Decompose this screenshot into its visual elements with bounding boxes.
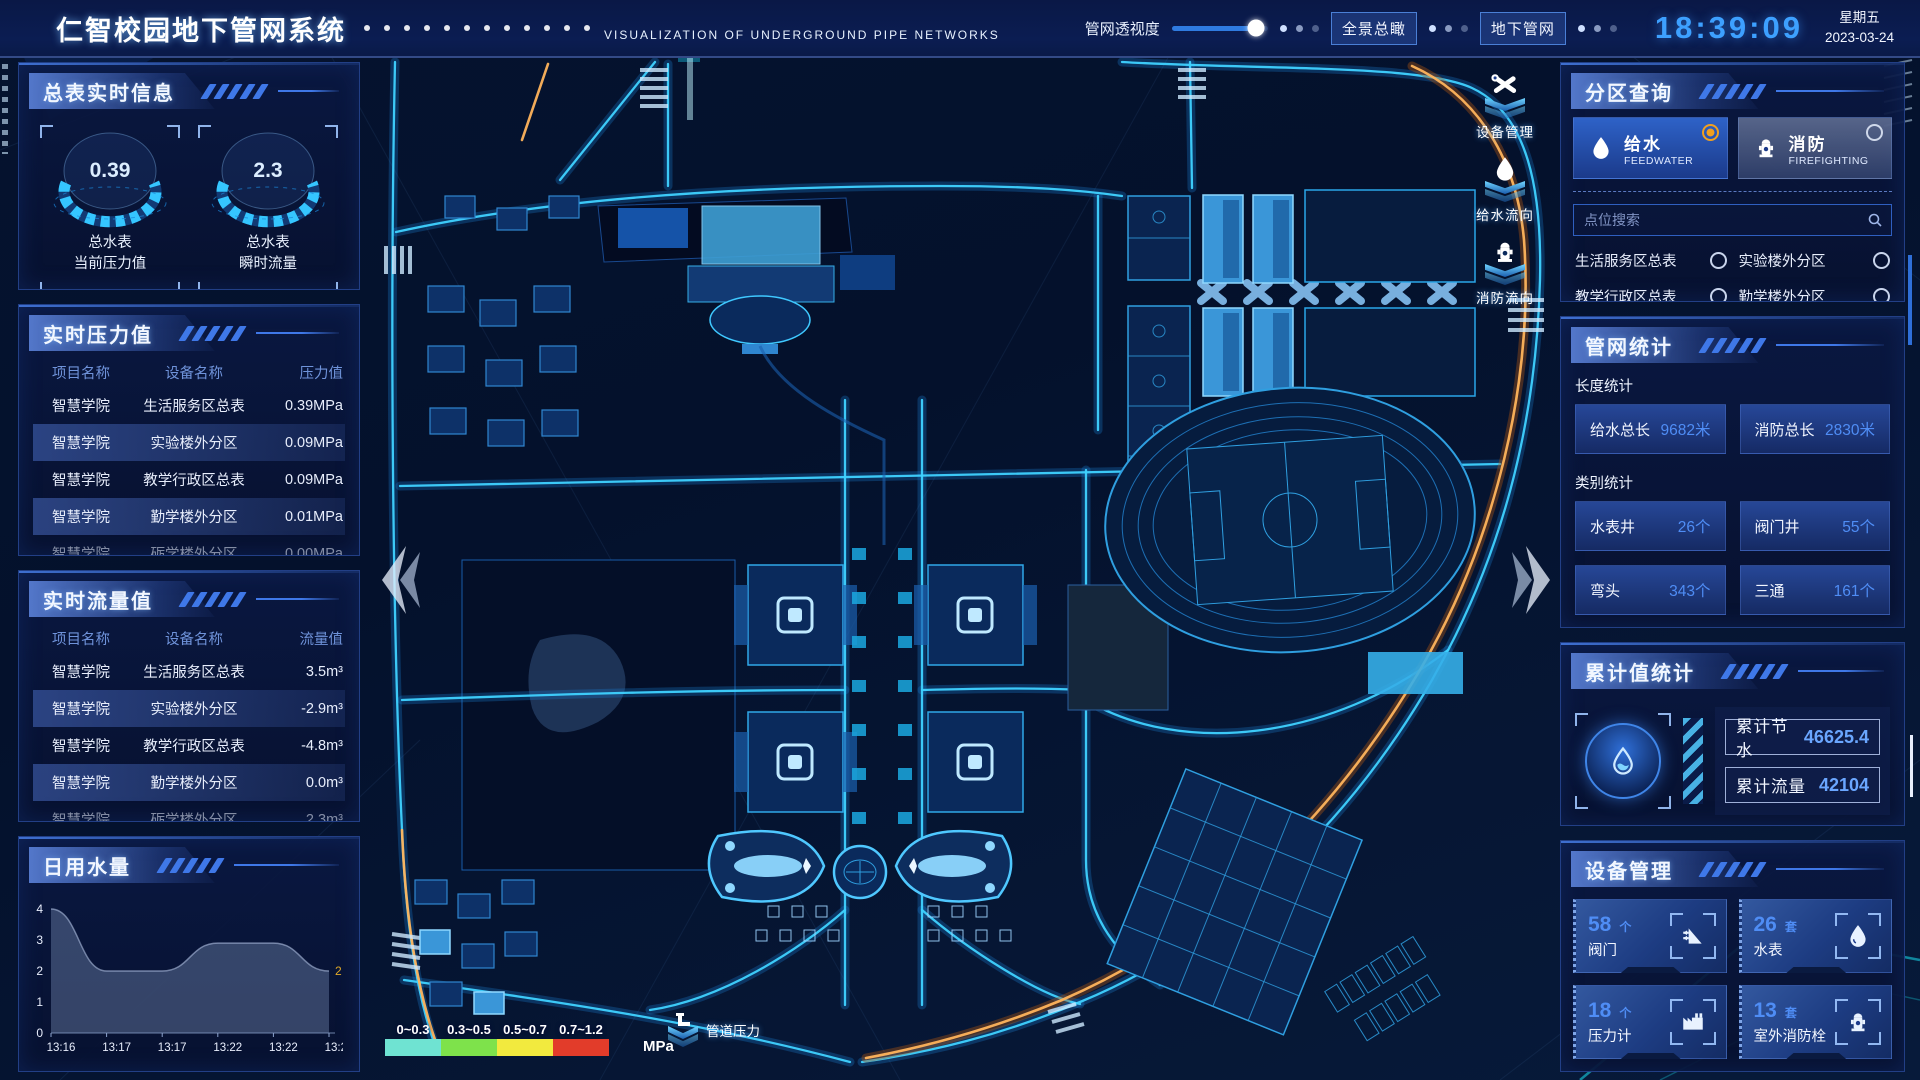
device-card-water-meter[interactable]: 26套 水表	[1739, 899, 1893, 973]
dashed-divider	[1573, 191, 1892, 192]
map-nav-right-chevron[interactable]	[1508, 542, 1560, 618]
radio-selected-icon	[1702, 124, 1719, 141]
zone-item[interactable]: 实验楼外分区	[1739, 250, 1891, 271]
water-drop-icon	[1588, 135, 1614, 161]
date: 2023-03-24	[1825, 28, 1894, 48]
accum-water-saved: 累计节水46625.4	[1725, 719, 1880, 755]
svg-text:2.3: 2.3	[253, 159, 282, 182]
slash-deco	[161, 858, 220, 873]
dot-separator	[1578, 25, 1617, 32]
table-row: 智慧学院教学行政区总表0.09MPa	[33, 461, 345, 498]
legend-range: 0.5~0.7	[497, 1022, 553, 1056]
hydrant-icon	[1835, 999, 1881, 1045]
water-meter-icon	[1835, 913, 1881, 959]
zone-item[interactable]: 生活服务区总表	[1575, 250, 1727, 271]
slash-deco	[183, 326, 242, 341]
map-tool-label: 给水流向	[1476, 204, 1534, 224]
svg-text:13:17: 13:17	[158, 1042, 187, 1054]
table-row: 智慧学院勤学楼外分区0.0m³	[33, 764, 345, 801]
panel-accumulated-stats: 累计值统计 累计节水46625.4 累计流量42104	[1560, 642, 1905, 826]
table-row: 智慧学院生活服务区总表3.5m³	[33, 653, 345, 690]
radio-unselected-icon	[1866, 124, 1883, 141]
map-nav-left-chevron[interactable]	[372, 542, 424, 618]
device-card-pressure-gauge[interactable]: 18个 压力计	[1573, 985, 1727, 1059]
tab-sublabel: FEEDWATER	[1624, 155, 1693, 167]
pipe-icon	[674, 1012, 692, 1028]
scrollbar-fragment[interactable]	[1910, 735, 1913, 797]
panel-title: 日用水量	[29, 851, 131, 880]
pressure-legend: 0~0.3 0.3~0.5 0.5~0.7 0.7~1.2 MPa	[385, 1022, 674, 1056]
panel-title: 管网统计	[1571, 331, 1673, 360]
water-drop-icon	[1491, 155, 1519, 183]
wrench-icon	[1488, 70, 1522, 100]
radio-unselected-icon[interactable]	[1873, 252, 1890, 269]
table-row: 智慧学院砺学楼外分区0.00MPa	[33, 535, 345, 556]
hydrant-icon	[1753, 135, 1779, 161]
panel-zone-query: 分区查询 给水 FEEDWATER 消防 FIREFIGHTING	[1560, 62, 1905, 302]
svg-text:13:17: 13:17	[102, 1042, 131, 1054]
slash-deco	[1703, 84, 1762, 99]
zone-item[interactable]: 勤学楼外分区	[1739, 286, 1891, 302]
app-title: 仁智校园地下管网系统	[56, 9, 346, 48]
search-icon[interactable]	[1867, 212, 1883, 228]
edge-deco	[2, 64, 8, 154]
slash-deco	[1725, 664, 1784, 679]
svg-text:0.39: 0.39	[90, 159, 131, 182]
stat-box: 阀门井55个	[1740, 501, 1891, 551]
tab-sublabel: FIREFIGHTING	[1789, 155, 1869, 167]
panel-title: 实时压力值	[29, 319, 153, 348]
panel-title: 分区查询	[1571, 77, 1673, 106]
map-tool-fire-flow[interactable]: 消防流向	[1462, 238, 1548, 307]
panel-title: 总表实时信息	[29, 77, 175, 106]
dot-separator	[1429, 25, 1468, 32]
radio-unselected-icon[interactable]	[1710, 252, 1727, 269]
panel-realtime-pressure: 实时压力值 项目名称设备名称压力值 智慧学院生活服务区总表0.39MPa 智慧学…	[18, 304, 360, 556]
gauge-label-1: 总水表	[88, 235, 132, 251]
slash-deco	[1703, 338, 1762, 353]
accum-flow-total: 累计流量42104	[1725, 767, 1880, 803]
stat-box: 弯头343个	[1575, 565, 1726, 615]
clock: 18:39:09	[1655, 10, 1803, 46]
gauge-ring: 2.3	[204, 125, 332, 231]
legend-swatch	[441, 1039, 497, 1056]
panel-title: 累计值统计	[1571, 657, 1695, 686]
gauge-label-1: 总水表	[246, 235, 290, 251]
pressure-gauge-icon	[1670, 999, 1716, 1045]
panel-daily-water: 日用水量 0123413:1613:1713:1713:2213:2213:23…	[18, 836, 360, 1072]
tab-label: 消防	[1789, 130, 1869, 155]
opacity-slider-label: 管网透视度	[1085, 18, 1160, 39]
device-card-hydrant[interactable]: 13套 室外消防栓	[1739, 985, 1893, 1059]
panel-meter-realtime: 总表实时信息 0.39 总水表 当前压力值	[18, 62, 360, 290]
stat-box: 消防总长2830米	[1740, 404, 1891, 454]
map-tool-label: 消防流向	[1476, 287, 1534, 307]
table-row: 智慧学院实验楼外分区-2.9m³	[33, 690, 345, 727]
table-row: 智慧学院生活服务区总表0.39MPa	[33, 387, 345, 424]
stat-box: 水表井26个	[1575, 501, 1726, 551]
underground-button[interactable]: 地下管网	[1480, 12, 1566, 45]
overview-button[interactable]: 全景总瞰	[1331, 12, 1417, 45]
legend-swatch	[497, 1039, 553, 1056]
svg-text:2: 2	[335, 964, 342, 978]
search-box[interactable]	[1573, 204, 1892, 236]
panel-title: 设备管理	[1571, 855, 1673, 884]
striped-divider	[1683, 718, 1703, 804]
tab-feedwater[interactable]: 给水 FEEDWATER	[1573, 117, 1728, 179]
flow-table: 项目名称设备名称流量值 智慧学院生活服务区总表3.5m³ 智慧学院实验楼外分区-…	[19, 623, 359, 822]
daily-water-chart: 0123413:1613:1713:1713:2213:2213:232	[19, 889, 359, 1068]
length-stats-subtitle: 长度统计	[1575, 375, 1890, 396]
table-row: 智慧学院实验楼外分区0.09MPa	[33, 424, 345, 461]
app-subtitle: VISUALIZATION OF UNDERGROUND PIPE NETWOR…	[604, 28, 1000, 42]
svg-text:0: 0	[36, 1026, 43, 1040]
scrollbar-fragment[interactable]	[1908, 255, 1912, 345]
table-header: 项目名称设备名称压力值	[33, 357, 345, 387]
panel-device-management: 设备管理 58个 阀门 26套 水表 18个	[1560, 840, 1905, 1072]
svg-text:13:22: 13:22	[213, 1042, 242, 1054]
pressure-table: 项目名称设备名称压力值 智慧学院生活服务区总表0.39MPa 智慧学院实验楼外分…	[19, 357, 359, 556]
category-stats-subtitle: 类别统计	[1575, 472, 1890, 493]
legend-range: 0~0.3	[385, 1022, 441, 1056]
slider-knob[interactable]	[1248, 20, 1265, 37]
slash-deco	[205, 84, 264, 99]
svg-text:3: 3	[36, 933, 43, 947]
tab-label: 给水	[1624, 130, 1693, 155]
legend-range: 0.3~0.5	[441, 1022, 497, 1056]
dot-separator	[1280, 25, 1319, 32]
legend-range: 0.7~1.2	[553, 1022, 609, 1056]
panel-network-stats: 管网统计 长度统计 给水总长9682米 消防总长2830米 类别统计 水表井26…	[1560, 316, 1905, 628]
slider-fill	[1172, 26, 1256, 31]
map-tool-device-management[interactable]: 设备管理	[1462, 70, 1548, 141]
gauge-ring: 0.39	[46, 125, 174, 231]
header-dots	[364, 25, 590, 31]
hydrant-icon	[1491, 238, 1519, 266]
slash-deco	[183, 592, 242, 607]
pipe-pressure-toggle[interactable]: 管道压力	[668, 1012, 760, 1047]
weekday: 星期五	[1825, 8, 1894, 28]
stat-box: 给水总长9682米	[1575, 404, 1726, 454]
gauge-label-2: 瞬时流量	[239, 256, 297, 272]
legend-swatch	[385, 1039, 441, 1056]
panel-title: 实时流量值	[29, 585, 153, 614]
svg-text:4: 4	[36, 902, 43, 916]
device-card-valve[interactable]: 58个 阀门	[1573, 899, 1727, 973]
map-tool-feedwater-flow[interactable]: 给水流向	[1462, 155, 1548, 224]
table-row: 智慧学院勤学楼外分区0.01MPa	[33, 498, 345, 535]
table-row: 智慧学院教学行政区总表-4.8m³	[33, 727, 345, 764]
legend-swatch	[553, 1039, 609, 1056]
svg-text:13:22: 13:22	[269, 1042, 298, 1054]
radio-unselected-icon[interactable]	[1873, 288, 1890, 302]
radio-unselected-icon[interactable]	[1710, 288, 1727, 302]
pipe-pressure-label: 管道压力	[706, 1020, 760, 1040]
svg-text:13:23: 13:23	[325, 1042, 343, 1054]
gauge-label-2: 当前压力值	[74, 256, 147, 272]
svg-text:1: 1	[36, 995, 43, 1009]
gauge-pressure: 0.39 总水表 当前压力值	[40, 125, 180, 290]
svg-text:2: 2	[36, 964, 43, 978]
pipe-opacity-slider[interactable]	[1172, 26, 1268, 31]
header-bar: 仁智校园地下管网系统 VISUALIZATION OF UNDERGROUND …	[0, 0, 1920, 58]
panel-realtime-flow: 实时流量值 项目名称设备名称流量值 智慧学院生活服务区总表3.5m³ 智慧学院实…	[18, 570, 360, 822]
gauge-flow: 2.3 总水表 瞬时流量	[198, 125, 338, 290]
water-saving-icon-frame	[1575, 713, 1671, 809]
search-input[interactable]	[1582, 211, 1867, 229]
svg-text:13:16: 13:16	[47, 1042, 76, 1054]
zone-item[interactable]: 教学行政区总表	[1575, 286, 1727, 302]
map-tool-label: 设备管理	[1476, 121, 1534, 141]
tab-firefighting[interactable]: 消防 FIREFIGHTING	[1738, 117, 1893, 179]
valve-icon	[1670, 913, 1716, 959]
table-header: 项目名称设备名称流量值	[33, 623, 345, 653]
water-drop-icon	[1585, 723, 1661, 799]
slash-deco	[1703, 862, 1762, 877]
table-row: 智慧学院砺学楼外分区2.3m³	[33, 801, 345, 822]
stat-box: 三通161个	[1740, 565, 1891, 615]
pipe-network-dashboard: { "colors":{"accent":"#3fd2ff","value_bl…	[0, 0, 1920, 1080]
date-box: 星期五 2023-03-24	[1825, 8, 1894, 49]
